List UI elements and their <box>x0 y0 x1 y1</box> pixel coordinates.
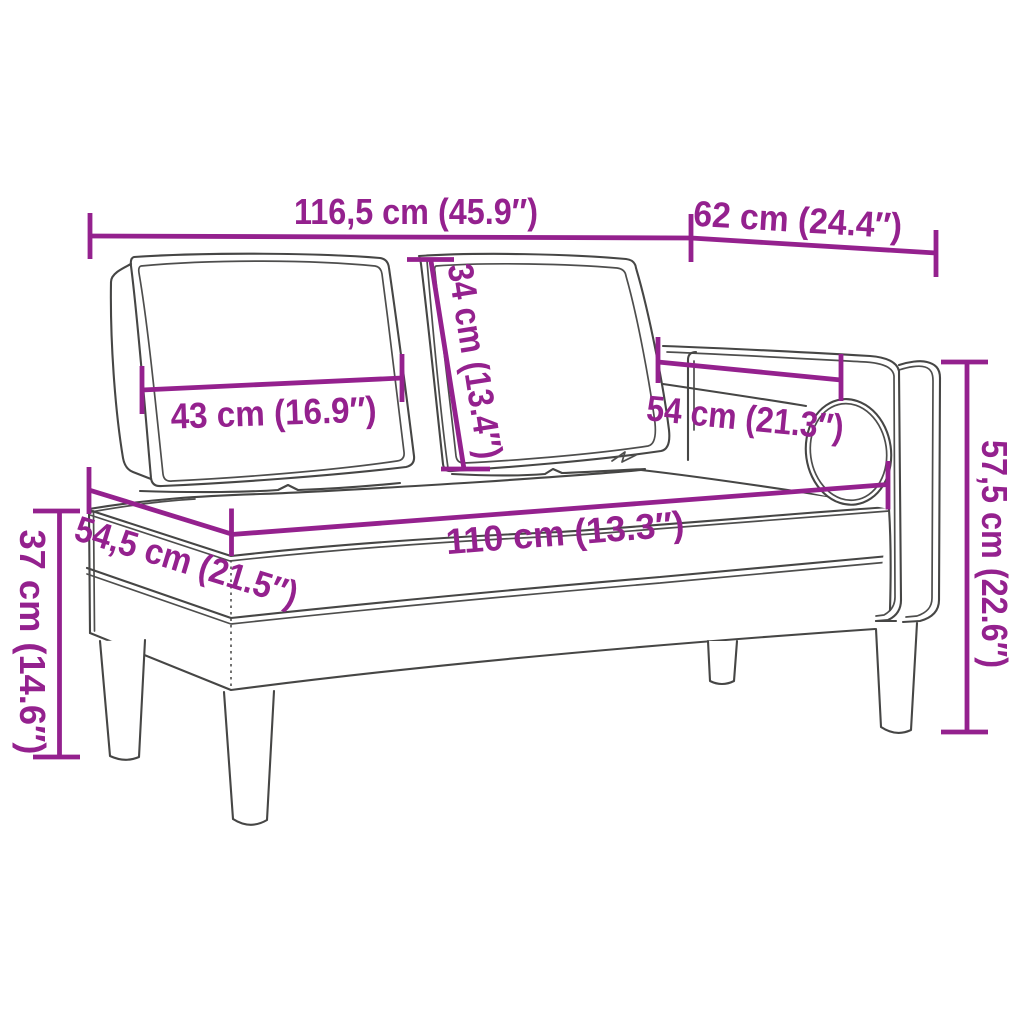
svg-text:43 cm (16.9″): 43 cm (16.9″) <box>170 388 377 436</box>
svg-text:37 cm (14.6″): 37 cm (14.6″) <box>12 530 53 755</box>
svg-text:116,5 cm (45.9″): 116,5 cm (45.9″) <box>294 191 538 232</box>
svg-text:57,5 cm (22.6″): 57,5 cm (22.6″) <box>974 440 1015 668</box>
